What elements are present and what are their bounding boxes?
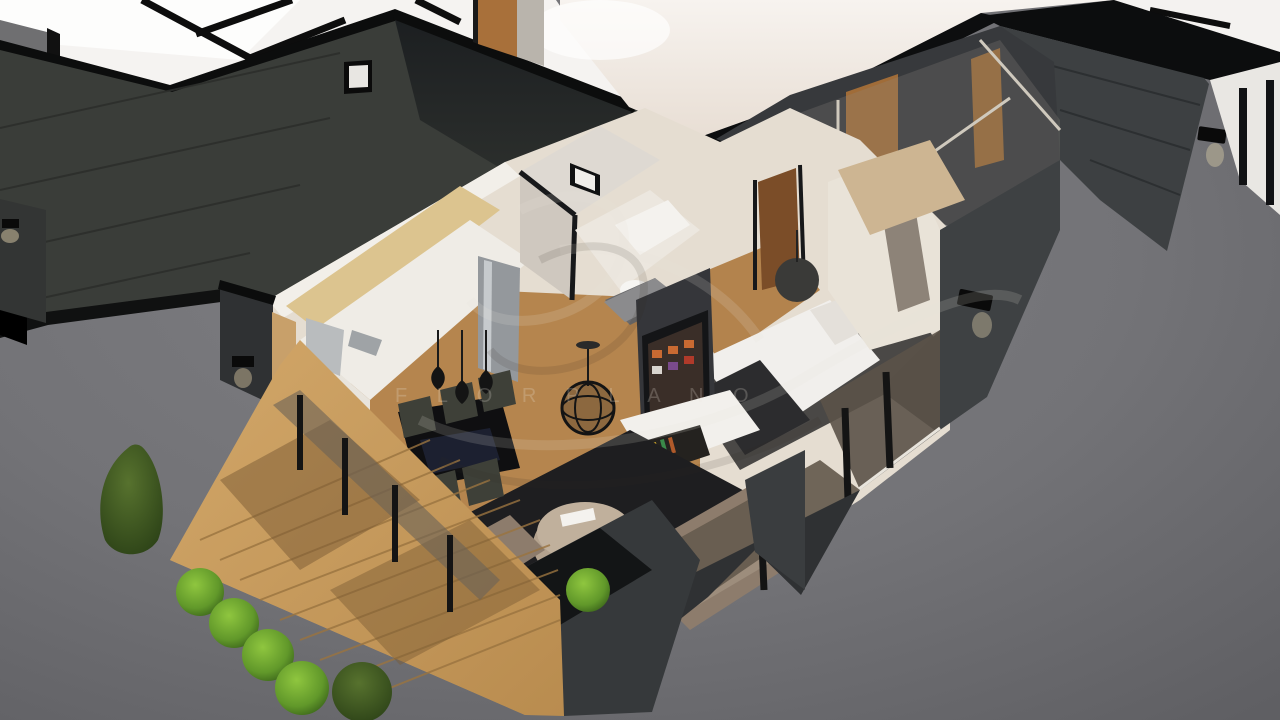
svg-text:F L O R P L A N O: F L O R P L A N O xyxy=(395,385,761,407)
